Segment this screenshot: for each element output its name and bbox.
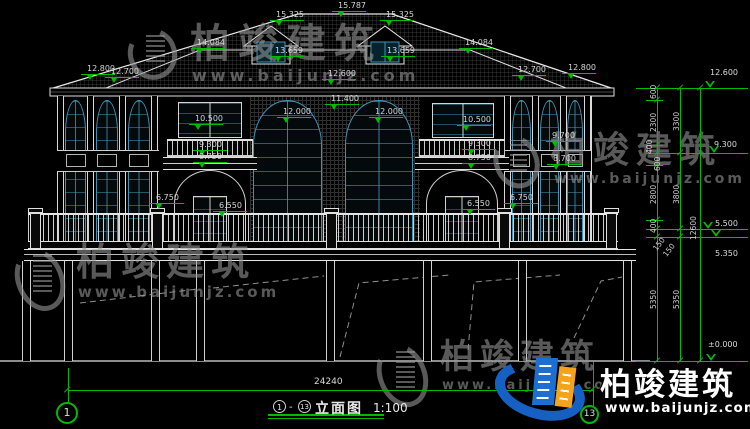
level-annotation: 11.400 bbox=[331, 94, 359, 110]
fence-post bbox=[499, 213, 510, 249]
level-annotation: 6.750 bbox=[510, 193, 538, 209]
ground-slope-dashed-lines bbox=[80, 275, 622, 357]
level-triangle-marker bbox=[709, 146, 719, 153]
level-annotation: 12.000 bbox=[375, 107, 403, 123]
fence-post bbox=[152, 213, 163, 249]
level-annotation: 12.800 bbox=[568, 63, 596, 79]
title-axis-circle-start: 1 bbox=[273, 400, 286, 413]
level-annotation: 15.325 bbox=[276, 10, 304, 26]
level-triangle-marker bbox=[703, 222, 713, 229]
level-triangle-marker bbox=[705, 81, 715, 88]
level-annotation: 8.750 bbox=[199, 152, 227, 168]
stilt-column bbox=[423, 261, 432, 361]
platform-slab bbox=[24, 249, 636, 261]
spandrel-panel bbox=[97, 154, 117, 167]
dimension-text: 3300 bbox=[672, 112, 681, 131]
baijun-brand-logo: 柏竣建筑 www.baijunjz.com bbox=[488, 356, 750, 429]
dimension-text: 2800 bbox=[649, 185, 658, 204]
dimension-text: 400 bbox=[649, 219, 658, 233]
dimension-text: 400 bbox=[645, 140, 654, 154]
terrace-balustrade bbox=[28, 213, 618, 241]
dimension-text: 3800 bbox=[672, 185, 681, 204]
dimension-text: 600 bbox=[649, 85, 658, 99]
level-annotation: 15.787 bbox=[338, 1, 366, 17]
stilt-column bbox=[518, 261, 527, 361]
axis-bubble-1: 1 bbox=[56, 402, 78, 424]
spandrel-panel bbox=[513, 154, 530, 167]
stilt-column bbox=[22, 261, 31, 361]
level-line bbox=[700, 153, 748, 154]
logo-building-blue-icon bbox=[532, 358, 558, 405]
title-underline bbox=[268, 418, 384, 419]
dimension-text: 5350 bbox=[672, 290, 681, 309]
logo-url-text: www.baijunjz.com bbox=[600, 399, 750, 417]
dimension-text: 12600 bbox=[689, 216, 698, 240]
level-annotation: 9.700 bbox=[552, 131, 580, 147]
level-annotation: 13.659 bbox=[387, 46, 415, 62]
level-annotation: 10.500 bbox=[195, 114, 223, 130]
level-annotation: 6.550 bbox=[467, 199, 495, 215]
overall-width-dimension: 24240 bbox=[314, 377, 343, 387]
level-annotation: 15.325 bbox=[386, 10, 414, 26]
level-annotation: 14.084 bbox=[465, 38, 493, 54]
level-annotation: 12.700 bbox=[518, 65, 546, 81]
level-annotation: 6.750 bbox=[156, 193, 184, 209]
balustrade-base-band bbox=[28, 241, 618, 249]
fence-post bbox=[606, 213, 617, 249]
title-separator: - bbox=[289, 402, 293, 413]
level-annotation: 8.750 bbox=[468, 153, 496, 169]
drawing-title: 立面图 bbox=[315, 398, 363, 418]
dimension-text: 600 bbox=[653, 157, 662, 171]
dimension-text: 2300 bbox=[649, 113, 658, 132]
dimension-line bbox=[700, 88, 701, 361]
level-annotation: 14.084 bbox=[197, 38, 225, 54]
level-value: 12.600 bbox=[710, 68, 738, 77]
level-annotation: 13.659 bbox=[275, 46, 303, 62]
fence-post bbox=[30, 213, 41, 249]
stilt-column bbox=[623, 261, 632, 361]
level-annotation: 12.700 bbox=[111, 67, 139, 83]
spandrel-panel bbox=[129, 154, 149, 167]
level-annotation: 12.600 bbox=[328, 69, 356, 85]
spandrel-panel bbox=[66, 154, 86, 167]
elevation-drawing-canvas: 柏竣建筑 www.baijunjz.com 柏竣建筑 www.baijunjz.… bbox=[0, 0, 750, 429]
stilt-column bbox=[64, 261, 73, 361]
level-annotation: 8.700 bbox=[553, 154, 581, 170]
level-annotation: 12.000 bbox=[283, 107, 311, 123]
level-triangle-marker bbox=[711, 230, 721, 237]
level-value: 5.350 bbox=[715, 249, 738, 258]
drawing-scale: 1:100 bbox=[373, 401, 408, 415]
stilt-column bbox=[196, 261, 205, 361]
level-value: 5.500 bbox=[715, 219, 738, 228]
fence-post bbox=[326, 213, 337, 249]
stilt-column bbox=[326, 261, 335, 361]
level-value: ±0.000 bbox=[708, 340, 738, 349]
axis-bubble-13: 13 bbox=[580, 405, 599, 424]
level-annotation: 6.550 bbox=[219, 201, 247, 217]
logo-brand-text: 柏竣建筑 bbox=[600, 359, 736, 404]
dimension-text: 5350 bbox=[649, 290, 658, 309]
stilt-column bbox=[151, 261, 160, 361]
level-annotation: 10.500 bbox=[463, 115, 491, 131]
title-axis-circle-end: 13 bbox=[298, 400, 311, 413]
